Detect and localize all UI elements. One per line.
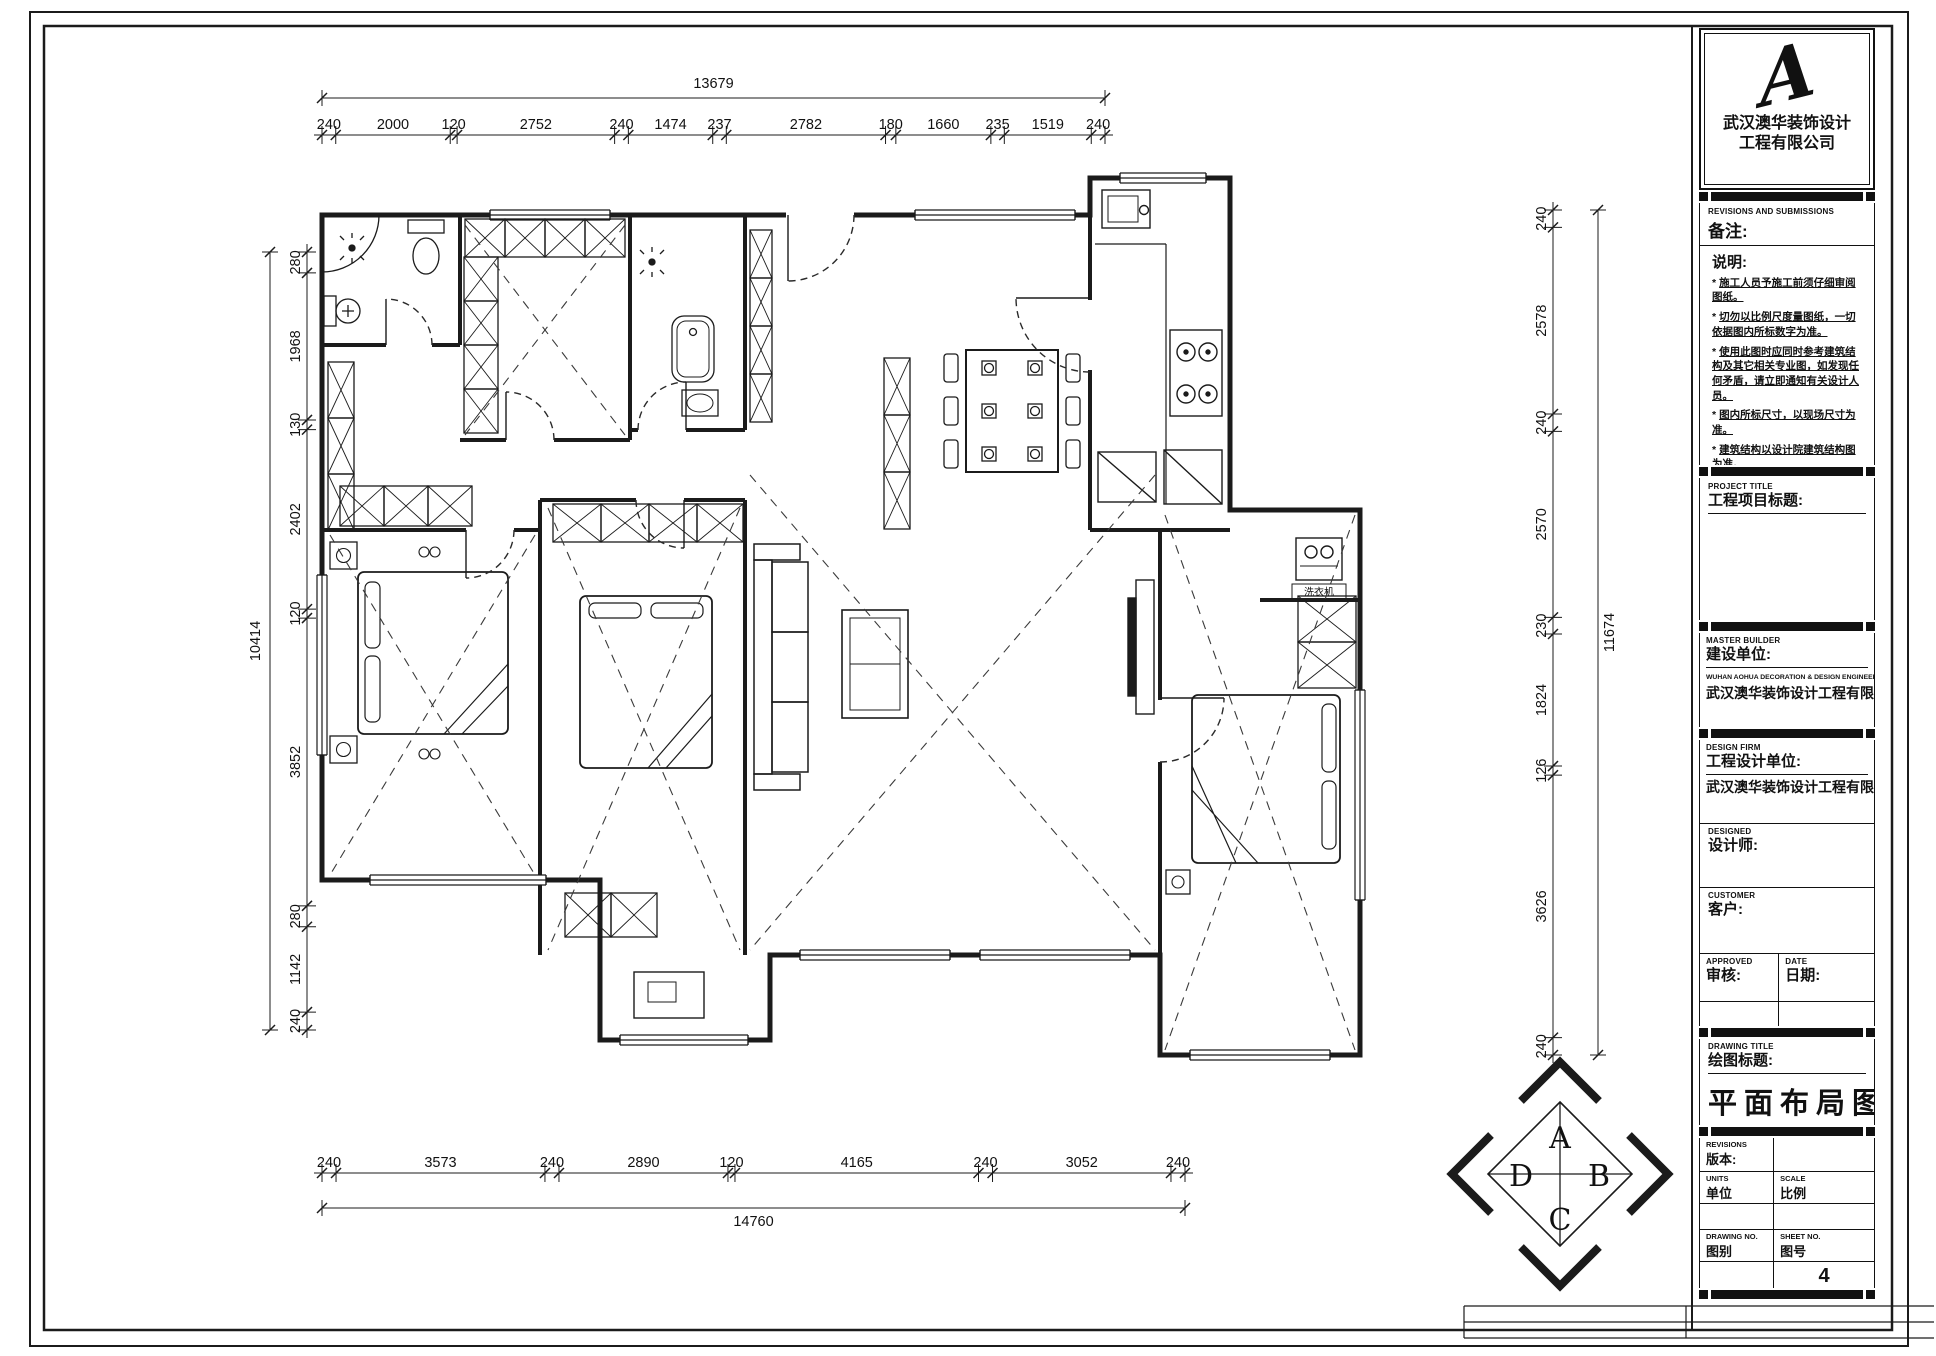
project-title-en: PROJECT TITLE [1708,483,1866,492]
note-item: *切勿以比例尺度量图纸，一切依据图内所标数字为准。 [1712,310,1866,339]
cabinet-xbox [340,486,384,526]
window [1120,173,1206,183]
dim-value: 235 [985,117,1009,133]
dim-value: 230 [1534,614,1550,638]
separator-bar [1699,190,1875,203]
cabinet-xbox [884,472,910,529]
drawing-title-value: 平面布局图 [1708,1080,1866,1122]
dim-value: 120 [288,601,304,625]
dim-value: 2578 [1534,305,1550,337]
balcony-desk [634,972,704,1018]
date-label-en: DATE [1785,958,1868,967]
shower-arc [322,215,379,272]
cabinet-xbox [384,486,428,526]
revision-label-en: REVISIONS [1706,1141,1767,1149]
dim-value: 240 [973,1155,997,1171]
dim-value: 14760 [733,1214,773,1230]
separator-bar [1699,465,1875,478]
direction-indicator: A B C D [1452,1062,1668,1286]
cabinet-xbox [697,504,743,542]
approved-label-en: APPROVED [1706,958,1772,967]
drawing-title-zh: 绘图标题: [1708,1052,1866,1070]
stove [1170,330,1222,416]
cabinet-xbox [1298,642,1356,688]
window [800,950,950,960]
dim-value: 2752 [520,117,552,133]
dim-value: 1824 [1534,684,1550,716]
compass-letter-a: A [1548,1121,1571,1156]
drawing-sheet: 洗衣机 [0,0,1936,1356]
dim-value: 2570 [1534,508,1550,540]
cabinet-xbox [611,893,657,937]
date-label-zh: 日期: [1785,967,1868,985]
cabinet-xbox [649,504,697,542]
cabinet-xbox [464,345,498,389]
dim-value: 1660 [927,117,959,133]
company-logo-box: A 武汉澳华装饰设计 工程有限公司 [1699,28,1875,190]
separator-bar [1699,727,1875,740]
units-label-en: UNITS [1706,1175,1767,1183]
bed-second [580,596,712,768]
compass-letter-d: D [1509,1159,1533,1194]
company-monogram-icon: A [1755,29,1819,121]
designer-label-zh: 设计师: [1708,837,1866,855]
cabinet-xbox [545,219,585,257]
company-name-line2: 工程有限公司 [1739,134,1835,154]
window [317,575,327,755]
bathroom-second [640,247,718,416]
cabinet-xbox [750,374,772,422]
master-builder-section: MASTER BUILDER 建设单位: WUHAN AOHUA DECORAT… [1699,633,1875,727]
separator-bar [1699,1125,1875,1138]
dim-chain-left: 280196813024021203852280114224010414 [248,244,316,1038]
separator-bar [1699,1026,1875,1039]
cabinet-xbox [328,418,354,474]
cabinet-xbox [553,504,601,542]
title-block: A 武汉澳华装饰设计 工程有限公司 REVISIONS AND SUBMISSI… [1692,26,1892,1330]
dim-value: 240 [288,1009,304,1033]
design-firm-section: DESIGN FIRM 工程设计单位: 武汉澳华装饰设计工程有限公司 [1699,740,1875,824]
dim-value: 3852 [288,746,304,778]
design-firm-en: DESIGN FIRM [1706,744,1868,753]
shower-head-icon [349,245,355,251]
approved-label-zh: 审核: [1706,967,1772,985]
dimension-chains: 2402000120275224014742372782180166023515… [248,76,1618,1230]
door-openings [386,209,854,536]
dim-value: 1474 [654,117,686,133]
window [620,1035,748,1045]
separator-bar [1699,620,1875,633]
drawing-title-section: DRAWING TITLE 绘图标题: 平面布局图 [1699,1039,1875,1125]
dim-value: 1968 [288,330,304,362]
design-firm-zh: 工程设计单位: [1706,753,1868,771]
dim-value: 13679 [693,76,733,92]
cabinet-xbox [750,230,772,278]
note-item: *施工人员予施工前须仔细审阅图纸。 [1712,276,1866,305]
compass-letter-b: B [1588,1159,1610,1194]
revision-grid: REVISIONS 版本: UNITS 单位 SCALE 比例 DRAWING … [1699,1138,1875,1288]
cabinet-xbox [328,362,354,418]
nightstand [330,736,357,763]
compass-letter-c: C [1549,1203,1572,1238]
bed-master [330,542,508,763]
cabinet-xbox [1298,596,1356,642]
dim-value: 3573 [424,1155,456,1171]
dim-value: 2000 [377,117,409,133]
builder-company-en: WUHAN AOHUA DECORATION & DESIGN ENGINEER… [1706,674,1868,681]
sofa [754,544,808,790]
dim-value: 130 [288,413,304,437]
exterior-walls [322,178,1360,1055]
designer-section: DESIGNED 设计师: [1699,824,1875,888]
dim-value: 240 [609,117,633,133]
design-firm-company: 武汉澳华装饰设计工程有限公司 [1706,777,1868,797]
drawing-no-label-en: DRAWING NO. [1706,1233,1767,1241]
toilet-bowl [413,238,439,274]
designer-label-en: DESIGNED [1708,828,1866,837]
note-item: *建筑结构以设计院建筑结构图为准。 [1712,443,1866,465]
compass-chevron-right [1629,1135,1668,1213]
cabinet-xbox [601,504,649,542]
compass-chevron-top [1521,1062,1599,1101]
sheet-no-label-zh: 图号 [1780,1241,1868,1260]
window [370,875,546,885]
project-title-section: PROJECT TITLE 工程项目标题: [1699,478,1875,620]
window [1355,690,1365,900]
dim-value: 2402 [288,503,304,535]
dim-chain-bottom: 240357324028901204165240305224014760 [314,1155,1193,1230]
dim-value: 280 [288,904,304,928]
dim-value: 1142 [288,954,304,985]
cabinet-xbox [428,486,472,526]
compass-chevron-bottom [1521,1247,1599,1286]
dim-value: 240 [540,1155,564,1171]
floor-plan-sheet: 洗衣机 [0,0,1936,1356]
cabinet-xbox [464,257,498,301]
dim-value: 240 [317,117,341,133]
note-item: *使用此图时应同时参考建筑结构及其它相关专业图，如发现任何矛盾，请立即通知有关设… [1712,345,1866,404]
dim-value: 120 [442,117,466,133]
storage-cabinets [328,219,1356,937]
compass-chevron-left [1452,1135,1491,1213]
tv-console [1128,580,1154,714]
dim-value: 2890 [627,1155,659,1171]
drawing-no-label-zh: 图别 [1706,1241,1767,1260]
dim-value: 1519 [1032,117,1064,133]
window [915,210,1075,220]
cabinet-xbox [750,278,772,326]
notes-header-zh: 备注: [1708,217,1866,242]
cabinet-xbox [328,474,354,530]
dim-value: 240 [317,1155,341,1171]
sink-pedestal [324,296,336,326]
cabinet-xbox [464,301,498,345]
coffee-table [842,610,908,718]
interior-walls [322,178,1360,1055]
cabinet-xbox [884,415,910,472]
window [980,950,1130,960]
shower-head-icon [649,259,655,265]
approval-section: APPROVED 审核: DATE 日期: [1699,954,1875,1026]
toilet-tank [408,220,444,233]
nightstand [330,542,357,569]
project-title-zh: 工程项目标题: [1708,492,1866,510]
dim-value: 3052 [1066,1155,1098,1171]
customer-label-en: CUSTOMER [1708,892,1866,901]
separator-bar [1699,1288,1875,1301]
dim-value: 180 [879,117,903,133]
dim-value: 240 [1086,117,1110,133]
builder-label-en: MASTER BUILDER [1706,637,1868,646]
cabinet-xbox [565,893,611,937]
cabinet-xbox [750,326,772,374]
floor-plan: 洗衣机 [317,173,1365,1060]
nightstand [1166,870,1190,894]
dim-value: 240 [1534,207,1550,231]
dim-value: 237 [707,117,731,133]
builder-company-zh: 武汉澳华装饰设计工程有限公司 [1706,683,1868,703]
units-label-zh: 单位 [1706,1183,1767,1202]
builder-label-zh: 建设单位: [1706,646,1868,664]
cabinet-xbox [505,219,545,257]
window [1190,1050,1330,1060]
notes-header-en: REVISIONS AND SUBMISSIONS [1708,208,1866,217]
windows [317,173,1365,1060]
dim-value: 3626 [1534,890,1550,922]
bed-third [1166,695,1340,894]
dim-value: 240 [1166,1155,1190,1171]
revision-label-zh: 版本: [1706,1149,1767,1168]
dining-table [944,350,1080,472]
sheet-number: 4 [1780,1265,1868,1288]
scale-label-zh: 比例 [1780,1183,1868,1202]
cabinet-xbox [884,358,910,415]
customer-section: CUSTOMER 客户: [1699,888,1875,954]
dim-value: 120 [719,1155,743,1171]
scale-label-en: SCALE [1780,1175,1868,1183]
dim-chain-top: 2402000120275224014742372782180166023515… [314,76,1113,144]
sheet-no-label-en: SHEET NO. [1780,1233,1868,1241]
customer-label-zh: 客户: [1708,901,1866,919]
drawing-title-en: DRAWING TITLE [1708,1043,1866,1052]
kitchen [1095,190,1222,504]
dim-value: 4165 [841,1155,873,1171]
dim-value: 240 [1534,1034,1550,1058]
cabinet-xbox [464,389,498,433]
notes-heading: 说明: [1712,251,1866,272]
dim-value: 2782 [790,117,822,133]
dim-chain-right: 240257824025702301824126362624011674 [1534,202,1618,1063]
note-item: *图内所标尺寸，以现场尺寸为准。 [1712,408,1866,437]
dim-value: 11674 [1602,613,1618,652]
notes-section: REVISIONS AND SUBMISSIONS 备注: 说明: *施工人员予… [1699,203,1875,465]
dim-value: 10414 [248,621,264,661]
dim-value: 240 [1534,411,1550,435]
dim-value: 280 [288,250,304,274]
bathroom-main [322,215,444,326]
dim-value: 126 [1534,759,1550,783]
